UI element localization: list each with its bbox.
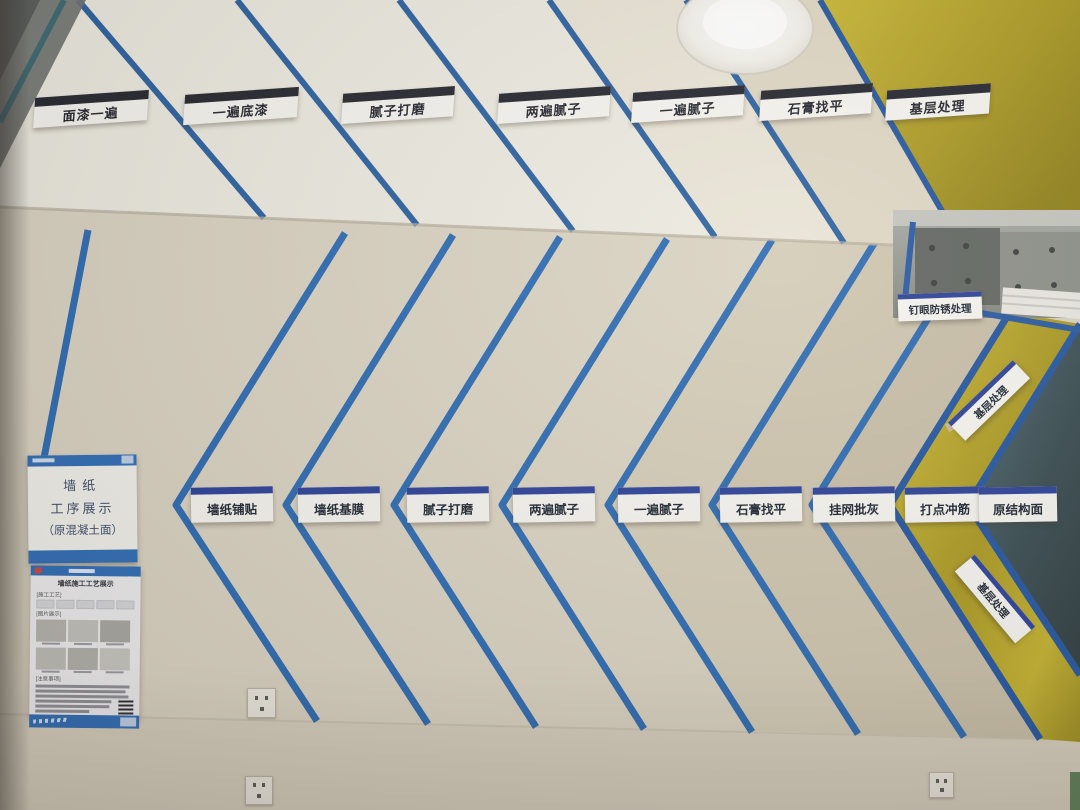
power-outlet bbox=[929, 772, 954, 798]
poster-photo-caption bbox=[36, 670, 66, 673]
poster-photo bbox=[68, 648, 98, 670]
wall-step-plaque: 墙纸铺贴 bbox=[191, 486, 274, 522]
wall-step-label: 墙纸基膜 bbox=[298, 493, 380, 522]
poster-photo bbox=[100, 620, 130, 642]
wall-step-label: 一遍腻子 bbox=[618, 493, 700, 522]
signature-mark bbox=[33, 718, 67, 724]
process-poster: 墙纸施工工艺展示 [施工工艺] [图片展示] [注意事项] bbox=[29, 565, 141, 718]
poster-photo bbox=[68, 620, 98, 642]
process-title-sign: 墙纸 工序展示 （原混凝土面） bbox=[27, 454, 137, 563]
wall-step-label: 两遍腻子 bbox=[513, 493, 595, 522]
green-sliver bbox=[1070, 772, 1080, 810]
poster-white-logo bbox=[69, 569, 95, 573]
poster-photo-grid bbox=[36, 619, 135, 674]
note-line bbox=[35, 694, 128, 697]
poster-photo-caption bbox=[68, 671, 98, 674]
note-line bbox=[35, 709, 89, 712]
sign-footer-bar bbox=[28, 549, 137, 563]
wall-step-label: 腻子打磨 bbox=[407, 493, 489, 522]
flow-step bbox=[116, 600, 134, 609]
wall-step-label: 打点冲筋 bbox=[905, 493, 985, 522]
poster-photo bbox=[36, 619, 66, 641]
wall-step-plaque: 石膏找平 bbox=[720, 486, 803, 522]
poster-header-bar bbox=[31, 565, 141, 576]
wall-step-plaque: 两遍腻子 bbox=[513, 486, 596, 522]
wall-step-plaque: 腻子打磨 bbox=[407, 486, 490, 522]
wall-step-plaque: 打点冲筋 bbox=[905, 486, 986, 522]
poster-section-process: [施工工艺] bbox=[36, 590, 140, 599]
wall-step-label: 原结构面 bbox=[979, 493, 1057, 522]
flow-step bbox=[56, 600, 74, 609]
poster-photo-caption bbox=[36, 642, 66, 645]
poster-title: 墙纸施工工艺展示 bbox=[31, 578, 141, 589]
poster-notes bbox=[35, 684, 133, 715]
poster-section-notes: [注意事项] bbox=[36, 674, 140, 683]
poster-section-photos: [图片展示] bbox=[36, 609, 140, 618]
wall-step-label: 石膏找平 bbox=[720, 493, 802, 522]
power-outlet bbox=[247, 688, 276, 718]
note-line bbox=[36, 684, 130, 687]
developer-logo bbox=[32, 458, 54, 462]
footer-stamp bbox=[120, 717, 136, 726]
sign-body: 墙纸 工序展示 （原混凝土面） bbox=[28, 465, 138, 550]
wall-step-plaque: 原结构面 bbox=[979, 486, 1058, 522]
wall-step-plaque: 一遍腻子 bbox=[618, 486, 701, 522]
flow-step bbox=[76, 600, 94, 609]
poster-photo bbox=[100, 648, 130, 670]
sign-header-bar bbox=[27, 454, 136, 466]
process-flow-bar bbox=[36, 599, 134, 609]
poster-photo bbox=[36, 647, 66, 669]
flow-step bbox=[96, 600, 114, 609]
process-display-room-photo: 面漆一遍 一遍底漆 腻子打磨 两遍腻子 一遍腻子 石膏找平 基层处理 墙纸铺贴 … bbox=[0, 0, 1080, 810]
note-line bbox=[35, 704, 109, 707]
wall-step-label: 墙纸铺贴 bbox=[191, 493, 273, 522]
room-geometry bbox=[0, 0, 1080, 810]
header-mark bbox=[121, 455, 133, 463]
note-line bbox=[35, 699, 111, 702]
poster-photo-caption bbox=[100, 671, 130, 674]
nail-rust-plaque: 钉眼防锈处理 bbox=[898, 292, 983, 322]
wall-step-plaque: 挂网批灰 bbox=[813, 486, 896, 522]
nail-rust-label: 钉眼防锈处理 bbox=[898, 297, 983, 322]
qr-code bbox=[118, 699, 133, 714]
wall-step-plaque: 墙纸基膜 bbox=[298, 486, 381, 522]
poster-photo-caption bbox=[100, 643, 130, 646]
poster-red-logo bbox=[35, 567, 42, 573]
sign-line2: 工序展示 bbox=[50, 498, 114, 521]
sign-line1: 墙纸 bbox=[63, 475, 101, 498]
wall-step-label: 挂网批灰 bbox=[813, 493, 895, 522]
poster-footer-bar bbox=[29, 714, 139, 728]
flow-step bbox=[36, 599, 54, 608]
power-outlet bbox=[245, 776, 273, 805]
poster-photo-caption bbox=[68, 643, 98, 646]
sign-line3: （原混凝土面） bbox=[42, 520, 123, 541]
note-line bbox=[35, 689, 125, 692]
